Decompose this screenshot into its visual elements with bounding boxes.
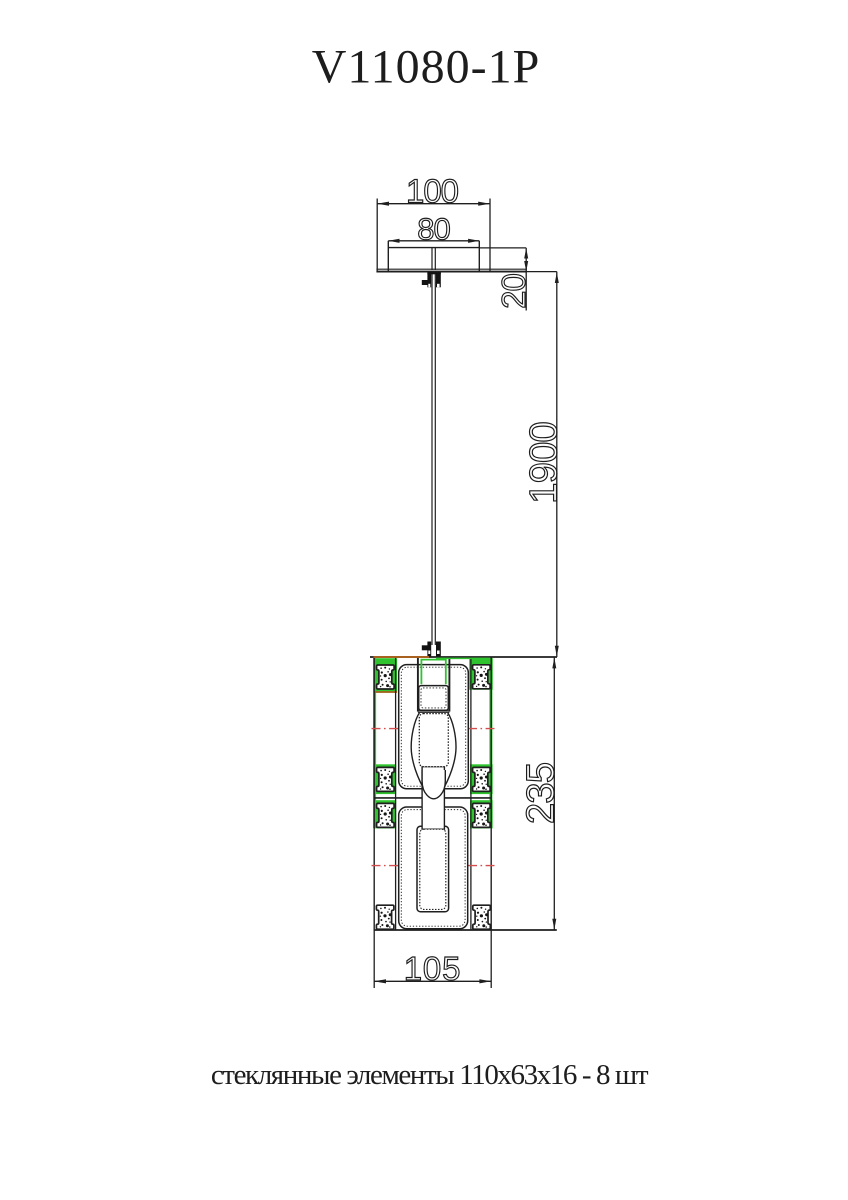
svg-text:105: 105 [404,950,461,987]
svg-text:20: 20 [495,274,532,309]
svg-text:1900: 1900 [523,422,566,504]
svg-text:стеклянные элементы 110х63х16: стеклянные элементы 110х63х16 - 8 шт [211,1059,649,1091]
svg-text:235: 235 [520,763,563,824]
svg-text:V11080-1P: V11080-1P [312,41,541,94]
